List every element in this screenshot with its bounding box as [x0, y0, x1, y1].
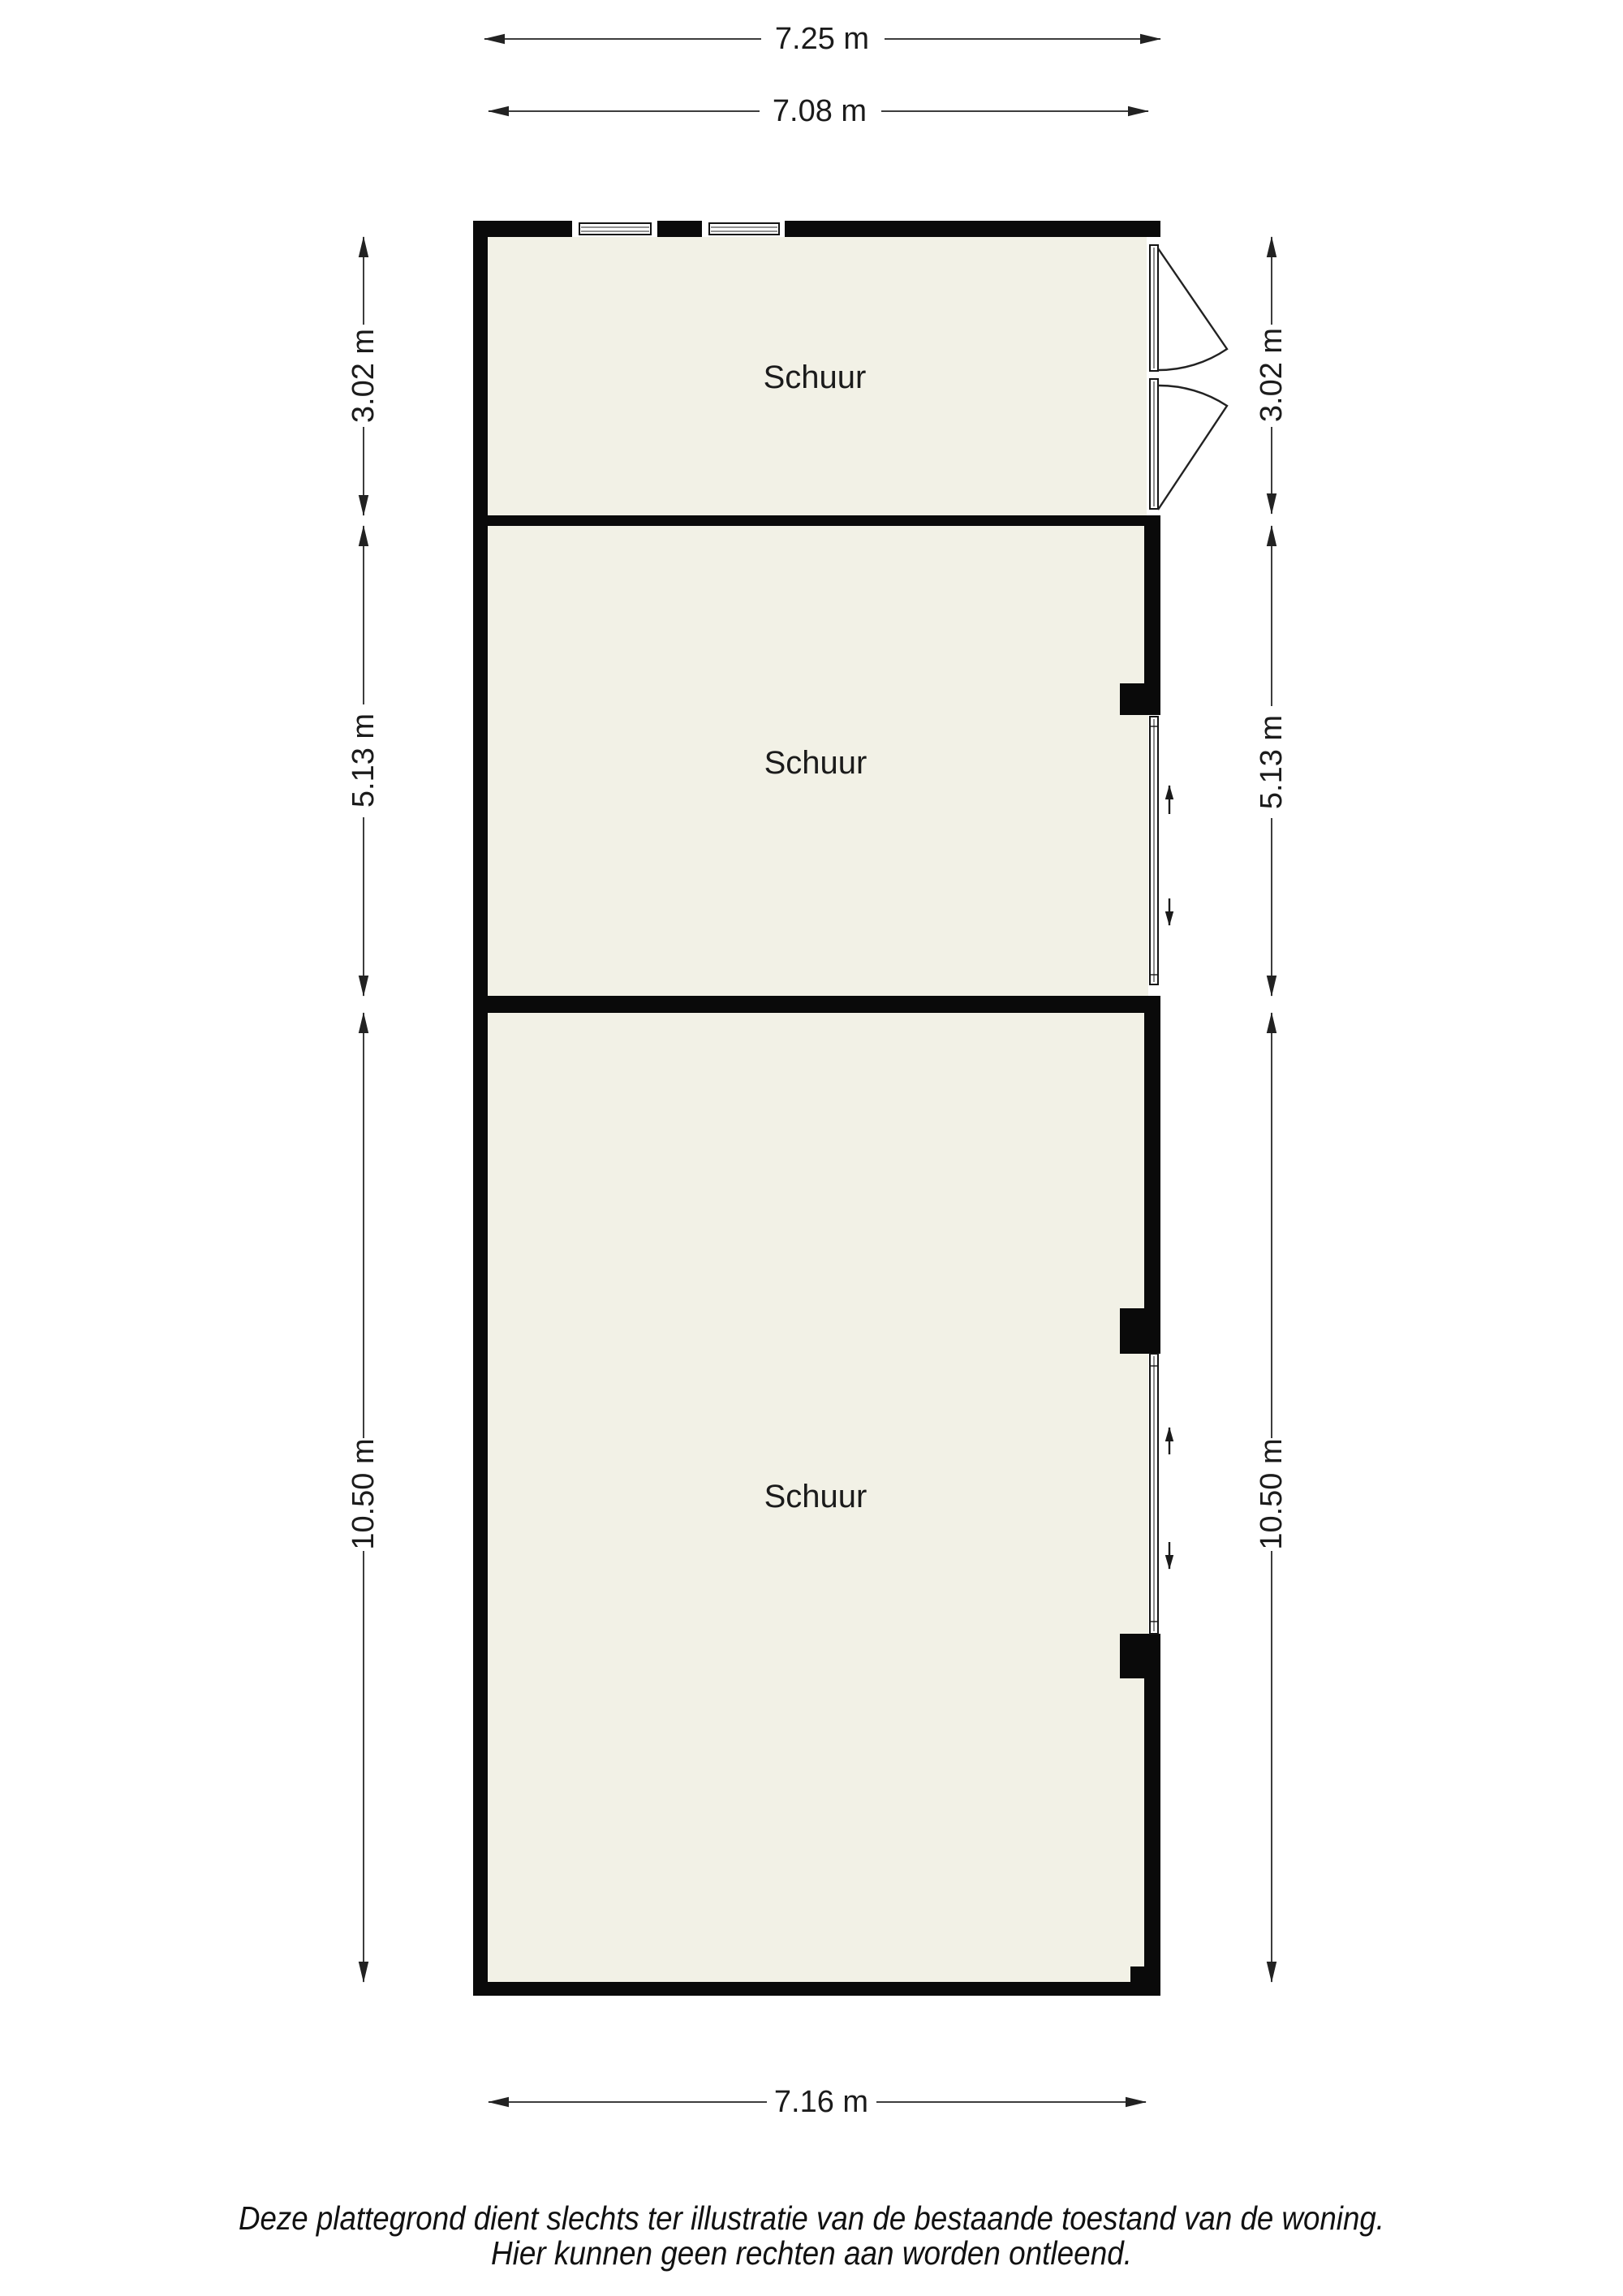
right-wall-room3-lower	[1144, 1678, 1160, 1982]
bottom-wall	[473, 1982, 1160, 1996]
top-wall-segment-right	[785, 221, 1160, 237]
dimension-label: 10.50 m	[347, 1438, 381, 1549]
room-1-label: Schuur	[764, 360, 867, 395]
sliding-door-icon-room2	[1150, 717, 1169, 984]
left-wall	[473, 221, 488, 1996]
divider-wall-2	[488, 996, 1160, 1013]
dimension-label: 7.08 m	[773, 94, 867, 128]
door-swing-arc-top	[1158, 248, 1227, 370]
dimension-right-room3: 10.50 m	[1255, 1013, 1289, 1982]
sliding-door-icon-room3	[1150, 1354, 1169, 1634]
right-pier-room2	[1120, 683, 1160, 715]
dimension-left-room1: 3.02 m	[347, 237, 381, 515]
window-2-frame	[709, 223, 779, 235]
double-door-icon	[1147, 237, 1227, 515]
disclaimer-line-1: Deze plattegrond dient slechts ter illus…	[239, 2199, 1384, 2237]
dimension-top-inner: 7.08 m	[489, 94, 1148, 128]
dimension-label: 5.13 m	[347, 713, 381, 808]
dimension-top-outer: 7.25 m	[484, 22, 1160, 56]
right-wall-room2	[1144, 526, 1160, 683]
dimension-right-room2: 5.13 m	[1255, 526, 1289, 996]
divider-wall-1	[488, 515, 1160, 526]
top-wall-segment-left	[473, 221, 572, 237]
dimension-right-room1: 3.02 m	[1255, 237, 1289, 514]
room-3-label: Schuur	[764, 1479, 867, 1514]
bottom-right-wall-step	[1130, 1966, 1147, 1982]
dimension-label: 7.25 m	[775, 22, 869, 56]
window-1-frame	[579, 223, 651, 235]
window-icon-1	[572, 221, 657, 237]
dimension-left-room2: 5.13 m	[347, 526, 381, 996]
page: Schuur Schuur Schuur 7.25 m 7.08 m 3.02 …	[0, 0, 1623, 2296]
floor-plan-svg: Schuur Schuur Schuur 7.25 m 7.08 m 3.02 …	[0, 0, 1623, 2296]
dimension-left-room3: 10.50 m	[347, 1013, 381, 1982]
dimension-label: 10.50 m	[1255, 1438, 1289, 1549]
dimension-label: 3.02 m	[347, 329, 381, 423]
disclaimer: Deze plattegrond dient slechts ter illus…	[239, 2199, 1384, 2272]
dimension-label: 5.13 m	[1255, 715, 1289, 809]
right-pier-room3-bottom	[1120, 1634, 1160, 1678]
right-pier-room3-top	[1120, 1308, 1160, 1354]
door-swing-arc-bottom	[1158, 386, 1227, 510]
room-floors	[488, 237, 1148, 1982]
dimension-label: 3.02 m	[1255, 328, 1289, 422]
room-2-label: Schuur	[764, 745, 867, 781]
right-wall-room3-upper	[1144, 1013, 1160, 1308]
dimension-bottom: 7.16 m	[489, 2085, 1146, 2119]
dimension-label: 7.16 m	[774, 2085, 868, 2119]
window-icon-2	[702, 221, 785, 237]
top-wall-segment-middle	[657, 221, 702, 237]
disclaimer-line-2: Hier kunnen geen rechten aan worden ontl…	[491, 2234, 1132, 2272]
